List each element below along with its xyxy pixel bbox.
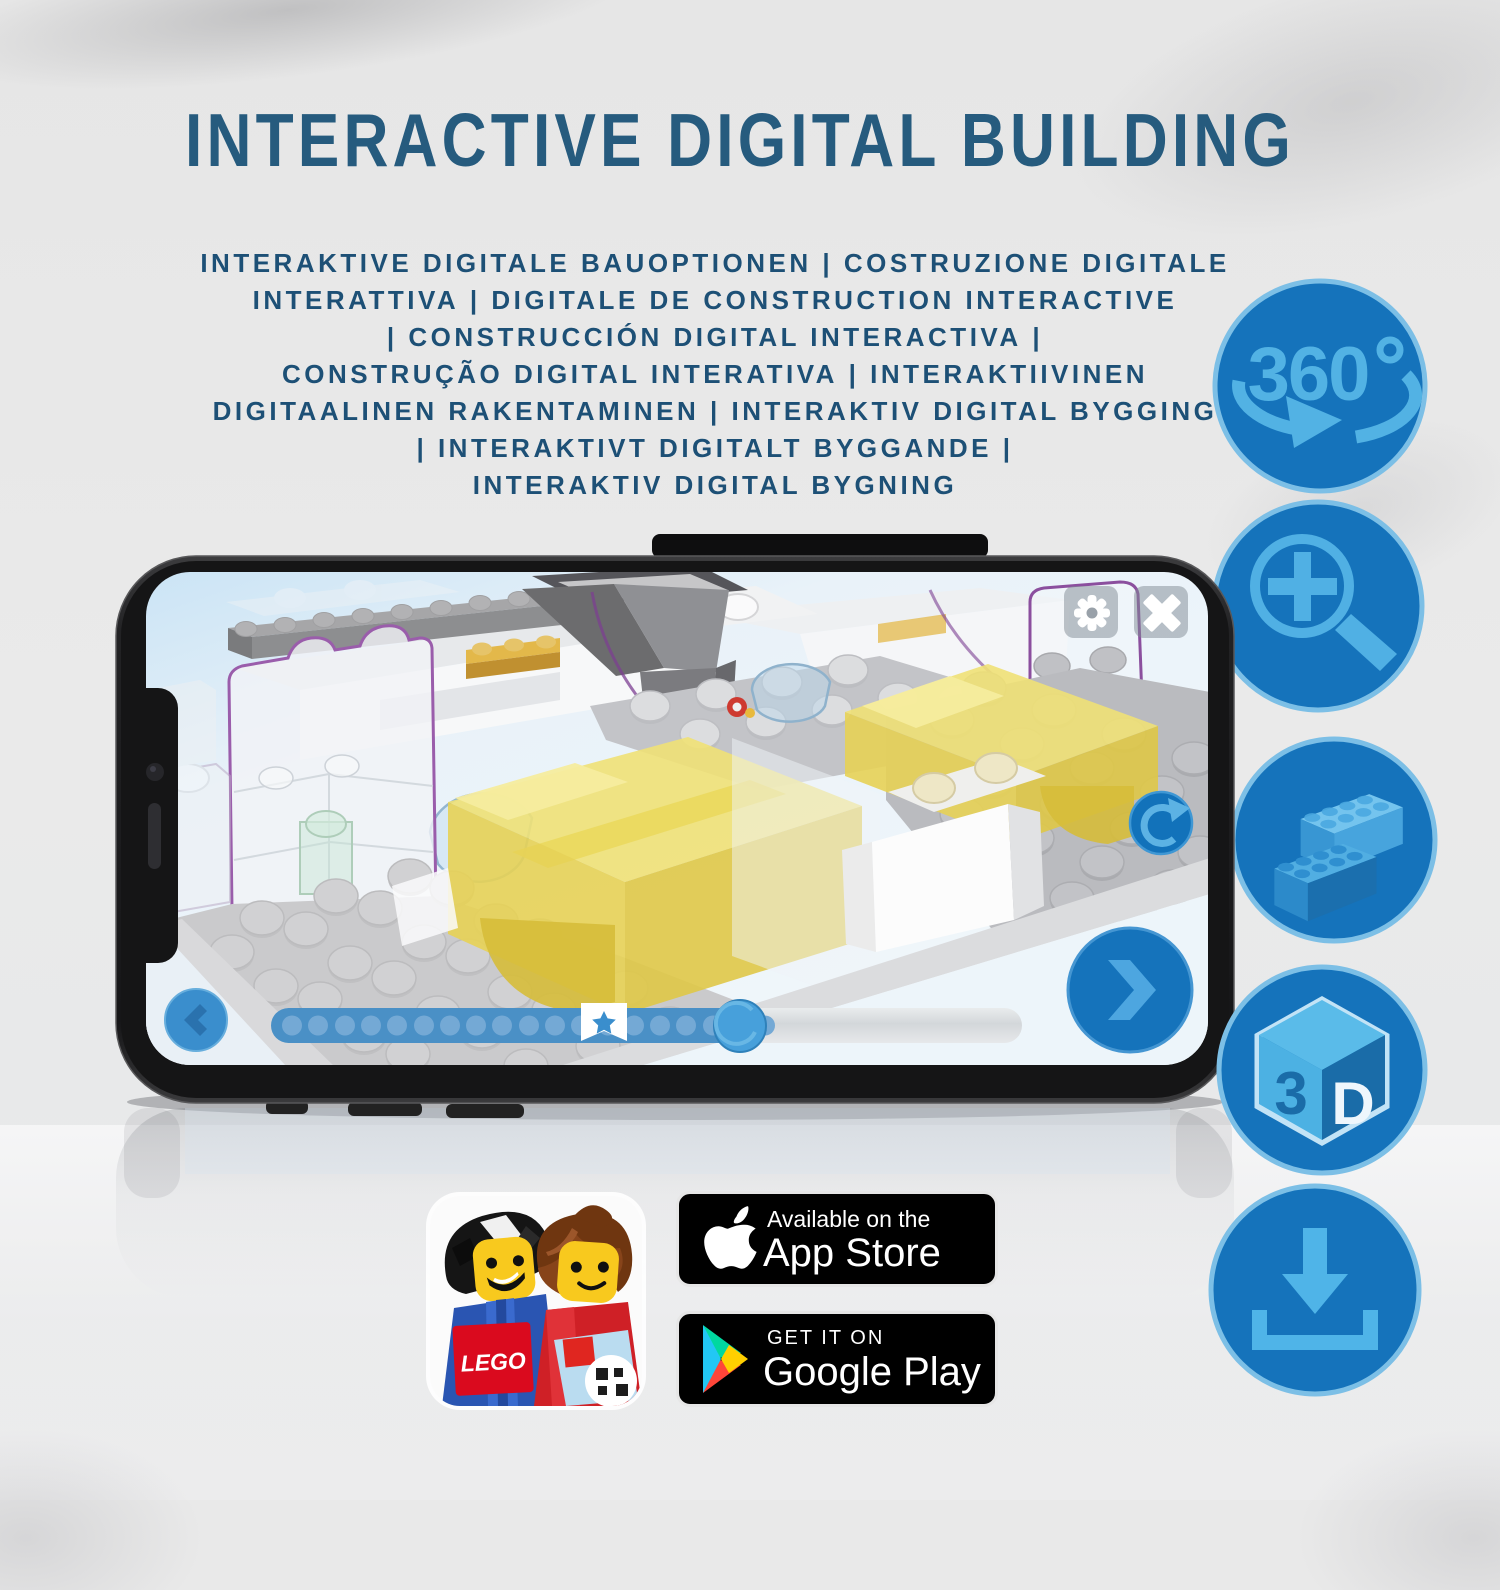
svg-text:Google Play: Google Play [763, 1350, 981, 1394]
svg-text:3: 3 [1274, 1060, 1307, 1127]
svg-text:LEGO: LEGO [460, 1347, 527, 1376]
svg-text:D: D [1331, 1070, 1374, 1137]
svg-text:GET IT ON: GET IT ON [767, 1327, 884, 1349]
svg-text:Available on the: Available on the [767, 1206, 930, 1232]
svg-text:App Store: App Store [763, 1231, 941, 1275]
svg-text:360: 360 [1248, 332, 1369, 417]
